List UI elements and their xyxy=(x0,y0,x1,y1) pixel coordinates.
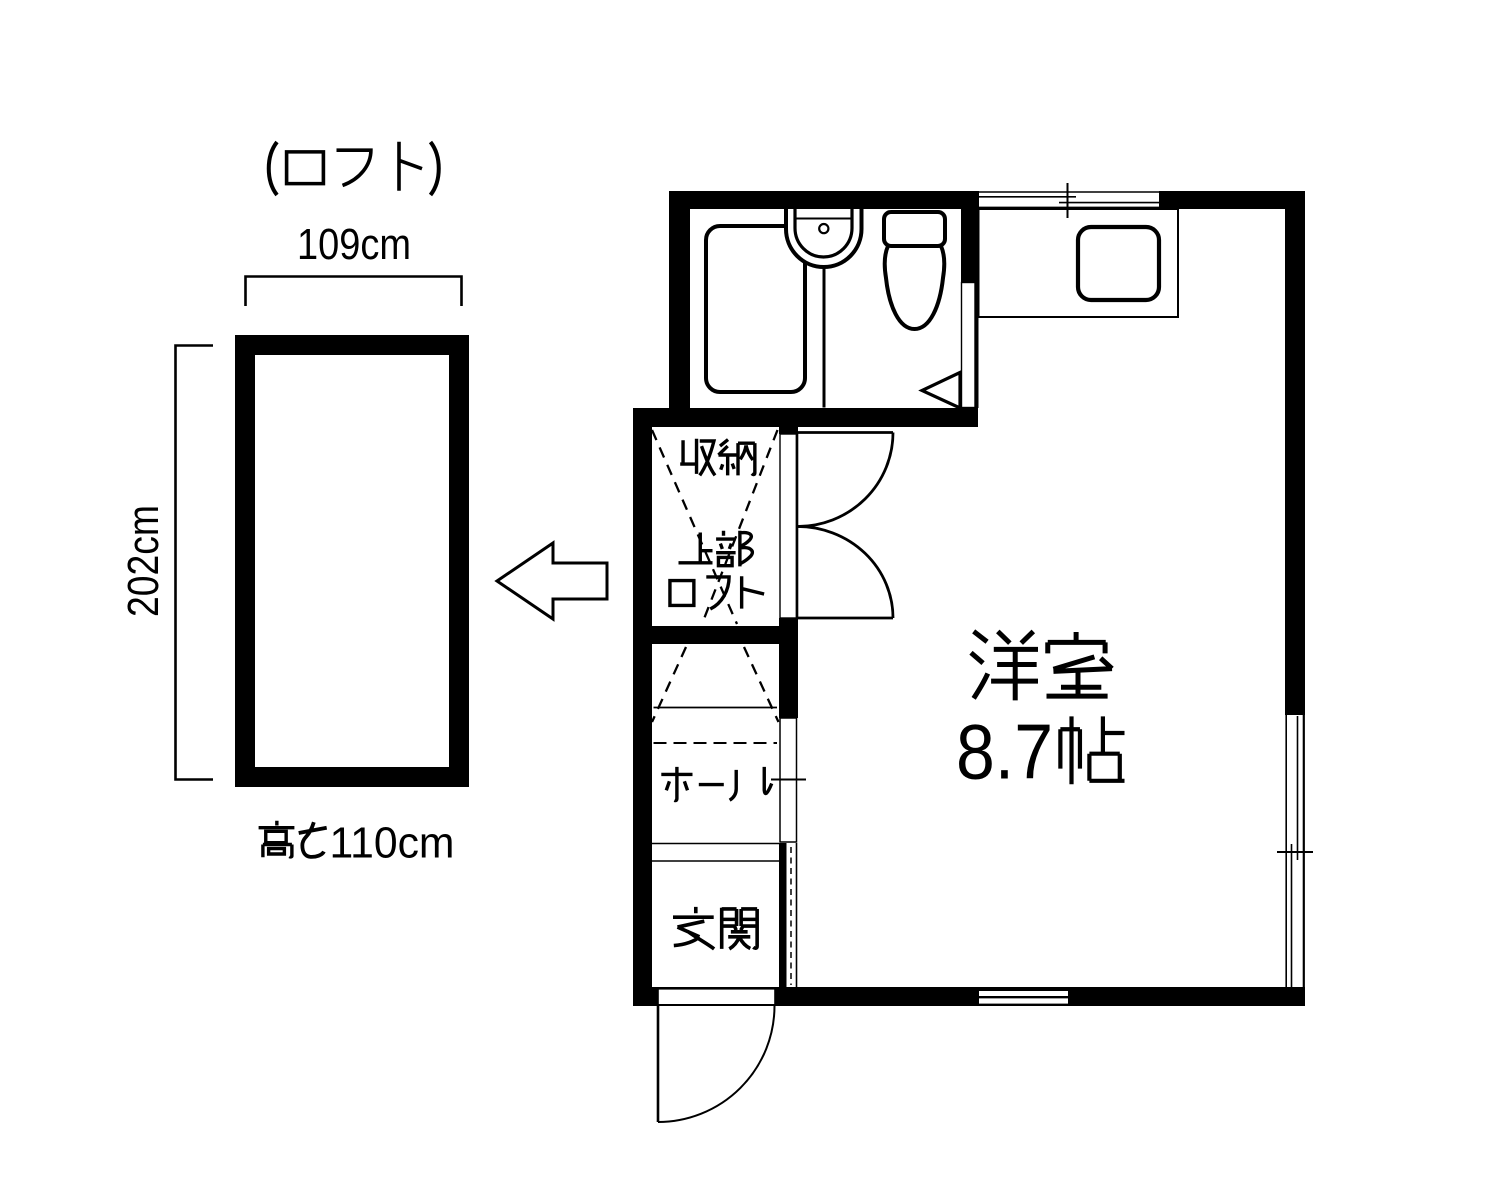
svg-text:110cm: 110cm xyxy=(330,819,455,868)
svg-text:8.7: 8.7 xyxy=(956,708,1053,796)
svg-text:109cm: 109cm xyxy=(297,220,411,269)
svg-text:202cm: 202cm xyxy=(119,505,168,617)
